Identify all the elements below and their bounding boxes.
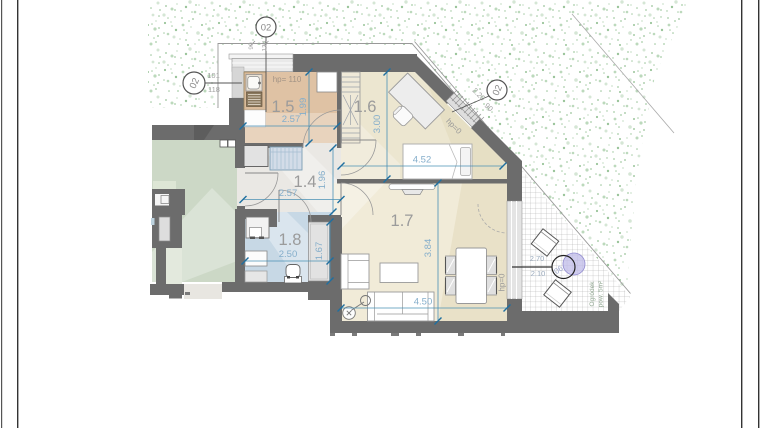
- svg-text:1.7: 1.7: [391, 212, 414, 230]
- svg-text:2.10: 2.10: [531, 269, 546, 278]
- svg-text:1.96: 1.96: [317, 171, 328, 190]
- svg-text:Ogródek: Ogródek: [589, 281, 596, 307]
- svg-text:1.99: 1.99: [298, 98, 309, 117]
- svg-text:4.52: 4.52: [413, 155, 432, 166]
- svg-text:4.50: 4.50: [414, 297, 433, 308]
- svg-text:1.8: 1.8: [279, 231, 302, 249]
- svg-text:1.67: 1.67: [314, 242, 325, 261]
- svg-text:1.6: 1.6: [354, 98, 377, 116]
- svg-text:1.4: 1.4: [294, 173, 317, 191]
- svg-text:118: 118: [208, 85, 220, 94]
- svg-text:1.5: 1.5: [272, 98, 295, 116]
- svg-text:3.00: 3.00: [372, 115, 383, 134]
- svg-text:124: 124: [262, 40, 269, 51]
- svg-text:2.70: 2.70: [530, 254, 545, 263]
- svg-text:101: 101: [207, 71, 220, 80]
- svg-text:90: 90: [248, 42, 255, 50]
- svg-text:pow. 5m²: pow. 5m²: [598, 280, 605, 307]
- svg-text:02: 02: [261, 23, 272, 34]
- svg-text:3.84: 3.84: [423, 239, 434, 258]
- svg-text:hp=0: hp=0: [498, 273, 507, 292]
- svg-text:hp= 110: hp= 110: [273, 75, 302, 84]
- svg-text:2.50: 2.50: [279, 249, 298, 260]
